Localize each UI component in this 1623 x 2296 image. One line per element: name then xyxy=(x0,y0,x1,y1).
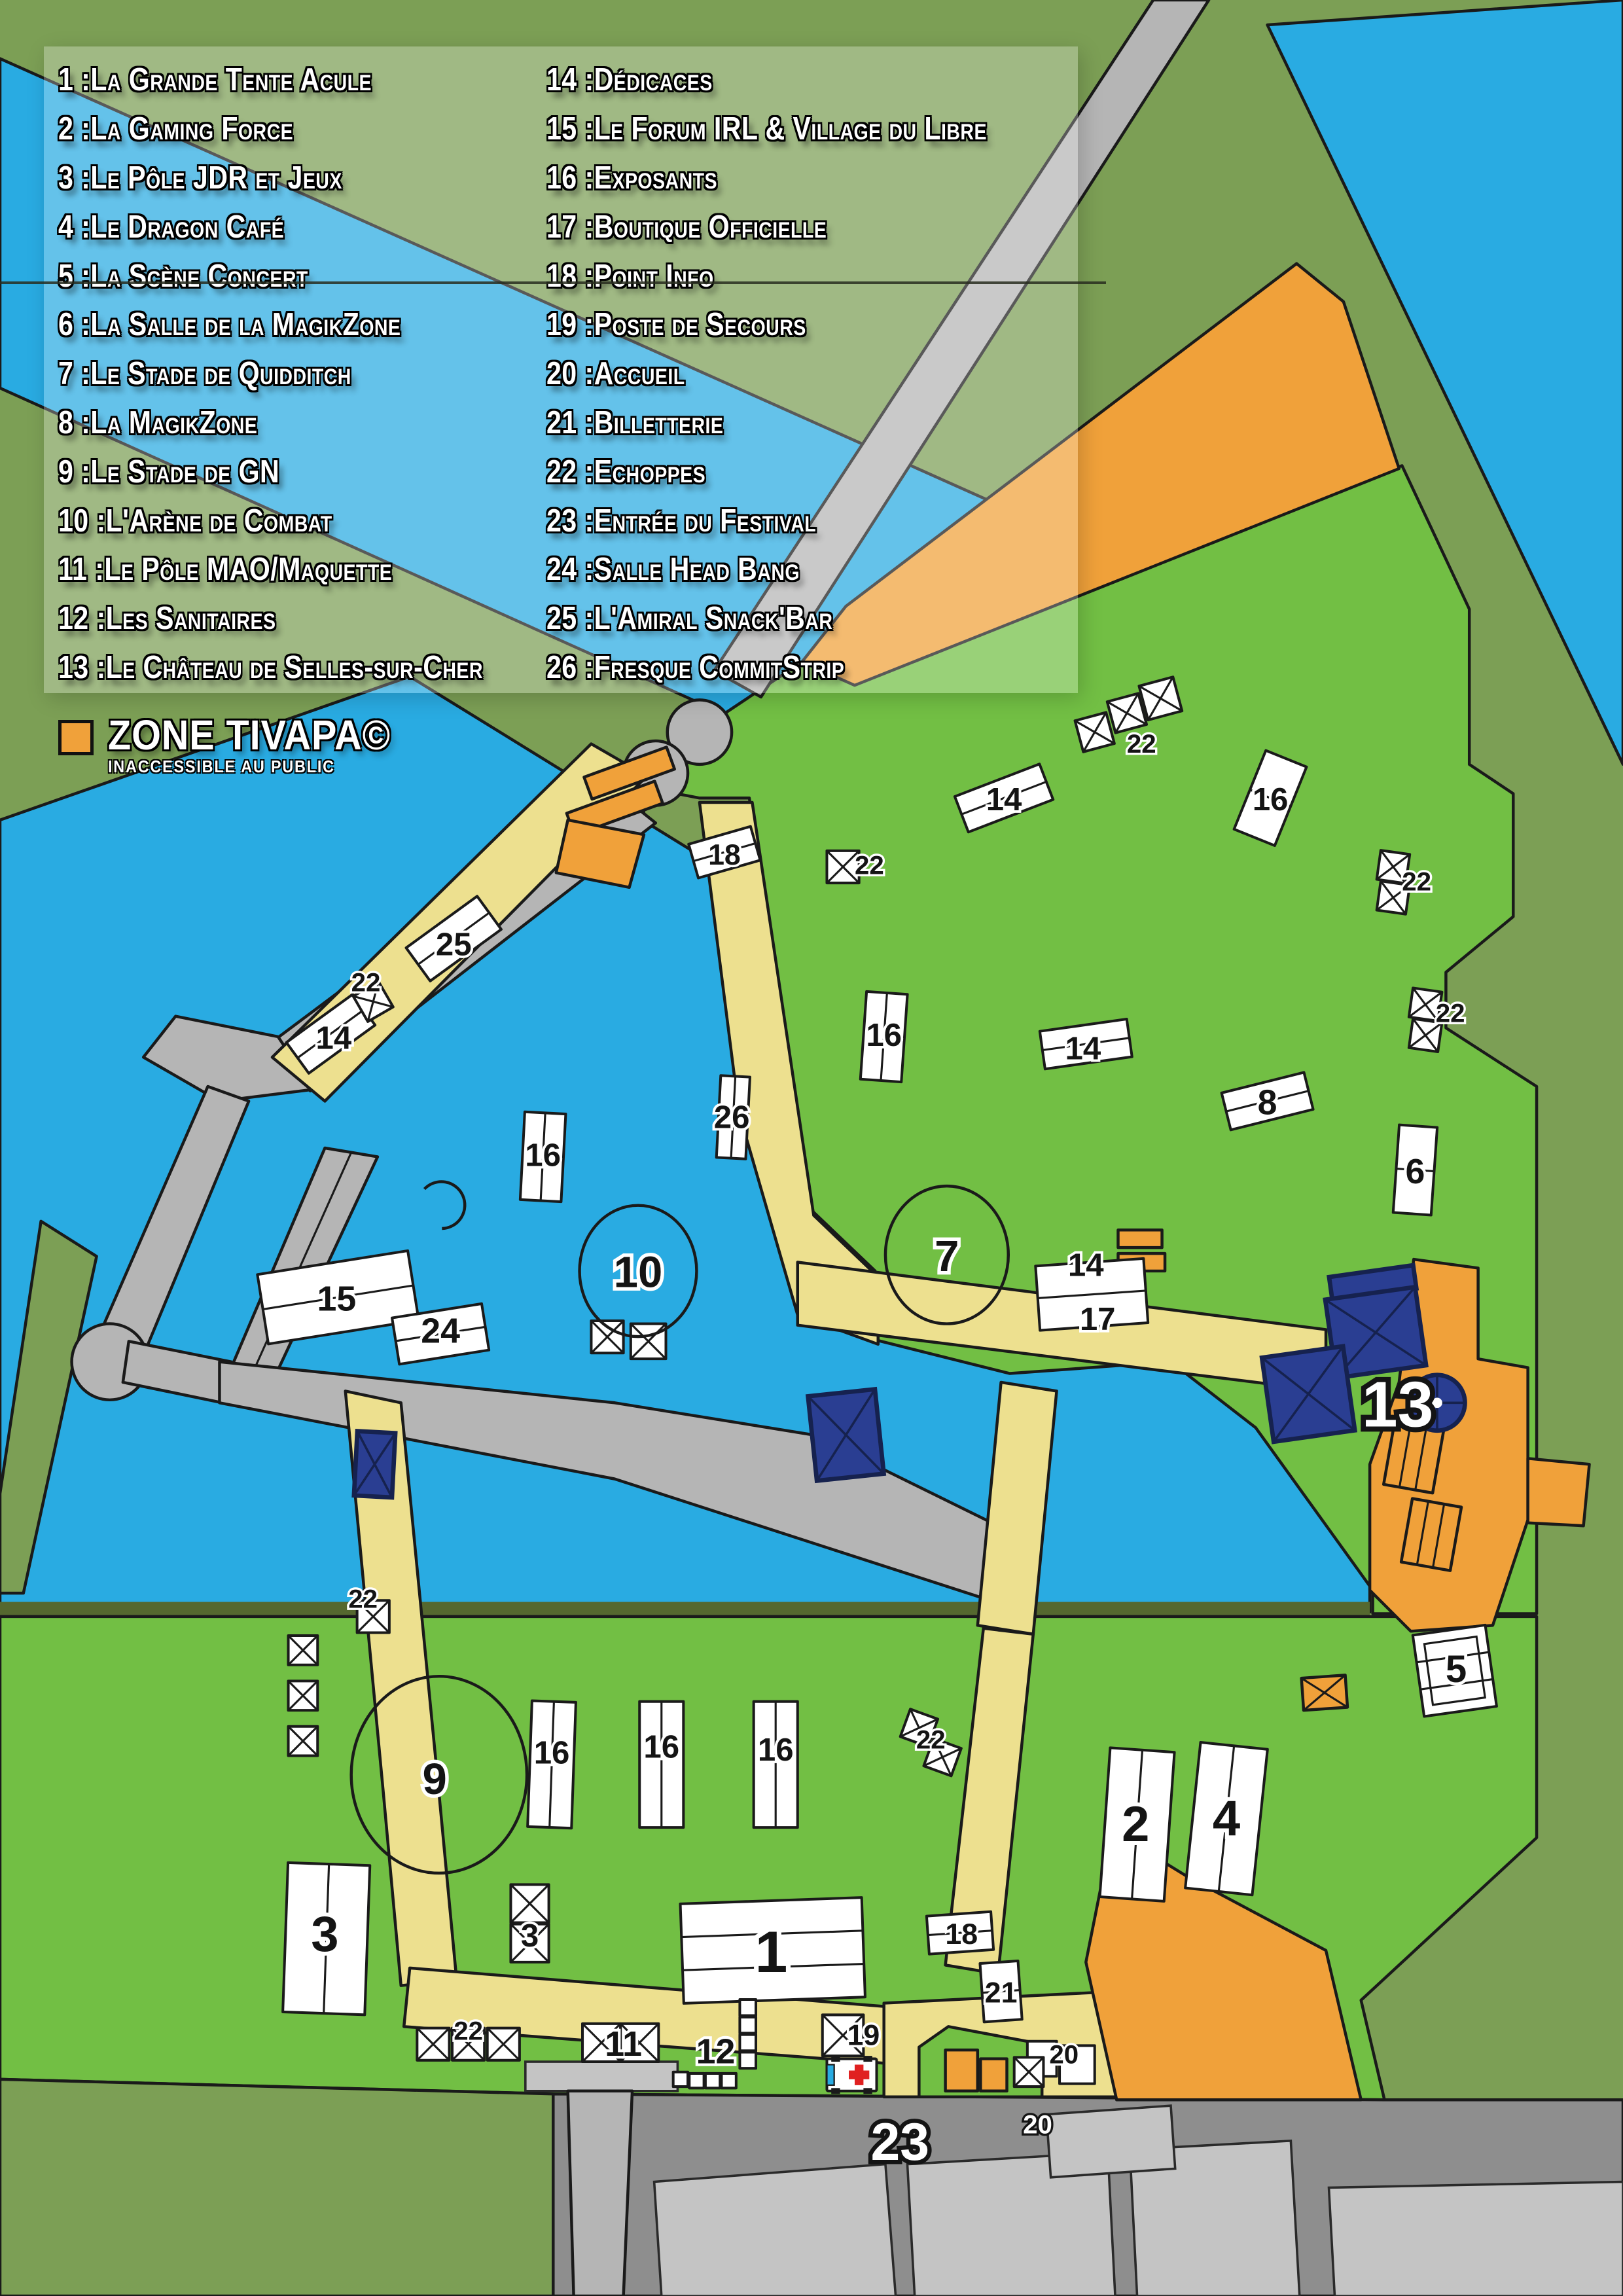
legend-item-label: Entrée du Festival xyxy=(594,503,817,539)
legend-panel: 1 : La Grande Tente Acule2 : La Gaming F… xyxy=(44,46,1078,693)
legend-item-number: 18 : xyxy=(546,258,594,295)
map-marker-22: 22 xyxy=(1436,999,1465,1028)
legend-item-label: Salle Head Bang xyxy=(594,551,800,588)
stall-tent-icon xyxy=(289,1681,318,1710)
legend-item-21: 21 : Billetterie xyxy=(546,399,987,448)
legend-item-number: 23 : xyxy=(546,503,594,539)
stall-tent-icon xyxy=(1139,677,1182,720)
map-marker-22: 22 xyxy=(348,1585,378,1614)
map-marker-8: 8 xyxy=(1258,1083,1277,1122)
tivapa-legend: ZONE TIVAPA© INACCESSIBLE AU PUBLIC xyxy=(58,711,422,777)
stall-tent-icon xyxy=(417,2028,449,2060)
legend-item-number: 21 : xyxy=(546,404,594,441)
legend-divider xyxy=(0,281,1106,284)
map-marker-7: 7 xyxy=(935,1232,959,1281)
legend-item-number: 1 : xyxy=(58,62,90,98)
legend-item-number: 4 : xyxy=(58,209,90,245)
legend-item-number: 6 : xyxy=(58,306,90,343)
legend-item-16: 16 : Exposants xyxy=(546,154,987,203)
legend-item-number: 3 : xyxy=(58,160,90,196)
legend-item-label: Accueil xyxy=(594,355,685,392)
legend-item-label: La Salle de la MagikZone xyxy=(90,306,401,343)
legend-item-label: Le Pôle JDR et Jeux xyxy=(90,160,342,196)
map-marker-17: 17 xyxy=(1080,1301,1116,1337)
legend-item-number: 20 : xyxy=(546,355,594,392)
legend-item-26: 26 : Fresque CommitStrip xyxy=(546,643,987,692)
stall-tent-icon xyxy=(488,2028,520,2060)
accueil-annex xyxy=(980,2059,1007,2091)
sanitary-block xyxy=(673,2072,688,2087)
legend-item-number: 11 : xyxy=(58,551,104,588)
map-marker-4: 4 xyxy=(1213,1791,1240,1846)
southwest-corner xyxy=(0,2079,553,2296)
map-marker-23: 23 xyxy=(871,2113,930,2172)
legend-item-number: 12 : xyxy=(58,600,106,637)
legend-item-number: 10 : xyxy=(58,503,106,539)
stall-tent-icon xyxy=(631,1323,666,1359)
map-marker-15: 15 xyxy=(317,1279,356,1318)
legend-item-label: Billetterie xyxy=(594,404,724,441)
legend-item-label: Point Info xyxy=(594,258,714,295)
legend-item-23: 23 : Entrée du Festival xyxy=(546,496,987,545)
legend-item-number: 24 : xyxy=(546,551,594,588)
first-aid-icon xyxy=(827,2056,876,2094)
parking-lot xyxy=(654,2164,896,2296)
map-marker-9: 9 xyxy=(423,1755,447,1804)
legend-item-19: 19 : Poste de Secours xyxy=(546,300,987,350)
castle-forecourt-arm xyxy=(1528,1458,1590,1526)
legend-item-label: La Gaming Force xyxy=(90,111,293,147)
map-marker-16: 16 xyxy=(534,1734,570,1770)
legend-item-label: L'Arène de Combat xyxy=(106,503,332,539)
legend-item-8: 8 : La MagikZone xyxy=(58,399,483,448)
legend-item-9: 9 : Le Stade de GN xyxy=(58,447,483,496)
legend-item-label: Le Stade de Quidditch xyxy=(90,355,351,392)
tower-dot xyxy=(1432,1397,1442,1408)
legend-column-right: 14 : Dédicaces15 : Le Forum IRL & Villag… xyxy=(546,56,1071,692)
legend-item-number: 13 : xyxy=(58,649,106,686)
legend-item-7: 7 : Le Stade de Quidditch xyxy=(58,350,483,399)
sanitary-block xyxy=(740,2035,756,2051)
legend-item-15: 15 : Le Forum IRL & Village du Libre xyxy=(546,105,987,154)
legend-item-number: 2 : xyxy=(58,111,90,147)
legend-item-label: Poste de Secours xyxy=(594,306,806,343)
legend-item-5: 5 : La Scène Concert xyxy=(58,251,483,300)
stall-tent-icon xyxy=(1075,712,1115,751)
legend-item-25: 25 : L'Amiral Snack'Bar xyxy=(546,594,987,643)
map-marker-25: 25 xyxy=(436,927,472,963)
legend-item-label: La MagikZone xyxy=(90,404,257,441)
legend-item-number: 7 : xyxy=(58,355,90,392)
sanitary-block xyxy=(740,2000,756,2016)
map-marker-14: 14 xyxy=(316,1020,352,1056)
legend-item-20: 20 : Accueil xyxy=(546,350,987,399)
map-marker-22: 22 xyxy=(855,851,884,880)
stall-tent-icon xyxy=(289,1727,318,1756)
legend-column-left: 1 : La Grande Tente Acule2 : La Gaming F… xyxy=(58,56,564,692)
festival-map-page: 2214161822222522161414228261661071417152… xyxy=(0,0,1623,2296)
legend-item-number: 19 : xyxy=(546,306,594,343)
map-marker-5: 5 xyxy=(1446,1648,1467,1691)
stall-tent-icon xyxy=(289,1636,318,1665)
map-marker-18: 18 xyxy=(708,839,741,871)
legend-item-number: 16 : xyxy=(546,160,594,196)
legend-item-label: La Grande Tente Acule xyxy=(90,62,372,98)
sanitary-block xyxy=(721,2073,736,2088)
legend-item-label: Le Pôle MAO/Maquette xyxy=(104,551,392,588)
map-marker-20: 20 xyxy=(1049,2039,1079,2069)
legend-item-label: Le Château de Selles-sur-Cher xyxy=(106,649,483,686)
legend-item-22: 22 : Echoppes xyxy=(546,447,987,496)
map-marker-10: 10 xyxy=(614,1248,663,1297)
legend-item-14: 14 : Dédicaces xyxy=(546,56,987,105)
map-marker-11: 11 xyxy=(605,2024,642,2064)
legend-item-label: Boutique Officielle xyxy=(594,209,827,245)
map-marker-22: 22 xyxy=(351,968,381,997)
map-marker-13: 13 xyxy=(1362,1369,1433,1441)
legend-item-label: Le Forum IRL & Village du Libre xyxy=(594,111,987,147)
legend-item-3: 3 : Le Pôle JDR et Jeux xyxy=(58,154,483,203)
legend-item-4: 4 : Le Dragon Café xyxy=(58,202,483,251)
map-marker-22: 22 xyxy=(916,1725,946,1754)
pier-platform xyxy=(526,2062,678,2091)
legend-item-label: Dédicaces xyxy=(594,62,713,98)
map-marker-14: 14 xyxy=(986,781,1022,817)
legend-item-label: Fresque CommitStrip xyxy=(594,649,845,686)
map-marker-19: 19 xyxy=(847,2019,880,2051)
map-marker-16: 16 xyxy=(525,1138,561,1174)
legend-item-11: 11 : Le Pôle MAO/Maquette xyxy=(58,545,483,594)
staff-tent-icon xyxy=(1302,1675,1347,1710)
legend-item-label: Echoppes xyxy=(594,454,705,490)
legend-item-17: 17 : Boutique Officielle xyxy=(546,202,987,251)
legend-item-10: 10 : L'Arène de Combat xyxy=(58,496,483,545)
legend-item-number: 22 : xyxy=(546,454,594,490)
map-marker-1: 1 xyxy=(755,1919,788,1984)
tivapa-swatch-icon xyxy=(58,720,94,755)
legend-item-24: 24 : Salle Head Bang xyxy=(546,545,987,594)
legend-item-13: 13 : Le Château de Selles-sur-Cher xyxy=(58,643,483,692)
map-marker-14: 14 xyxy=(1068,1247,1104,1283)
map-marker-16: 16 xyxy=(1253,781,1289,817)
tivapa-title: ZONE TIVAPA© xyxy=(108,711,391,759)
map-marker-16: 16 xyxy=(758,1732,794,1768)
map-marker-26: 26 xyxy=(714,1100,750,1136)
legend-item-number: 9 : xyxy=(58,454,90,490)
map-marker-14: 14 xyxy=(1065,1030,1101,1066)
legend-item-number: 15 : xyxy=(546,111,594,147)
tivapa-subtitle: INACCESSIBLE AU PUBLIC xyxy=(108,757,391,777)
legend-item-6: 6 : La Salle de la MagikZone xyxy=(58,300,483,350)
map-marker-22: 22 xyxy=(1402,867,1431,896)
legend-item-number: 8 : xyxy=(58,404,90,441)
sanitary-block xyxy=(689,2073,704,2088)
legend-item-label: Les Sanitaires xyxy=(106,600,276,637)
legend-item-number: 14 : xyxy=(546,62,594,98)
tivapa-strip xyxy=(1118,1230,1162,1247)
map-marker-20: 20 xyxy=(1023,2110,1052,2140)
legend-item-label: L'Amiral Snack'Bar xyxy=(594,600,833,637)
map-marker-6: 6 xyxy=(1406,1152,1425,1191)
map-marker-22: 22 xyxy=(1127,729,1156,759)
legend-item-label: Le Stade de GN xyxy=(90,454,279,490)
map-marker-16: 16 xyxy=(643,1729,679,1765)
legend-item-2: 2 : La Gaming Force xyxy=(58,105,483,154)
accueil-annex xyxy=(946,2050,978,2091)
legend-item-12: 12 : Les Sanitaires xyxy=(58,594,483,643)
legend-item-number: 5 : xyxy=(58,258,90,295)
map-marker-24: 24 xyxy=(421,1312,460,1351)
map-marker-16: 16 xyxy=(866,1017,902,1053)
legend-item-label: La Scène Concert xyxy=(90,258,308,295)
map-marker-3: 3 xyxy=(311,1907,338,1962)
sanitary-block xyxy=(705,2073,720,2088)
map-marker-3: 3 xyxy=(521,1918,539,1954)
gatehouse-building xyxy=(354,1431,395,1498)
map-marker-18: 18 xyxy=(945,1918,978,1950)
sanitary-block xyxy=(740,2052,756,2068)
stall-tent-icon xyxy=(1014,2057,1044,2087)
sanitary-block xyxy=(740,2017,756,2034)
stall-tent-icon xyxy=(510,1884,548,1922)
legend-item-1: 1 : La Grande Tente Acule xyxy=(58,56,483,105)
map-marker-12: 12 xyxy=(696,2032,736,2071)
map-marker-22: 22 xyxy=(454,2017,483,2046)
map-marker-2: 2 xyxy=(1122,1797,1149,1852)
stall-tent-icon xyxy=(1107,693,1147,732)
castle-stairs xyxy=(1401,1499,1461,1571)
legend-item-label: Le Dragon Café xyxy=(90,209,284,245)
legend-item-number: 17 : xyxy=(546,209,594,245)
parking-lot xyxy=(1329,2181,1623,2296)
legend-item-number: 25 : xyxy=(546,600,594,637)
gatehouse-building xyxy=(808,1390,884,1481)
legend-item-number: 26 : xyxy=(546,649,594,686)
parking-lot xyxy=(1046,2106,1175,2178)
pier xyxy=(568,2091,632,2296)
legend-item-18: 18 : Point Info xyxy=(546,251,987,300)
shore-line xyxy=(0,1602,1370,1617)
map-marker-21: 21 xyxy=(985,1977,1018,2009)
legend-item-label: Exposants xyxy=(594,160,717,196)
